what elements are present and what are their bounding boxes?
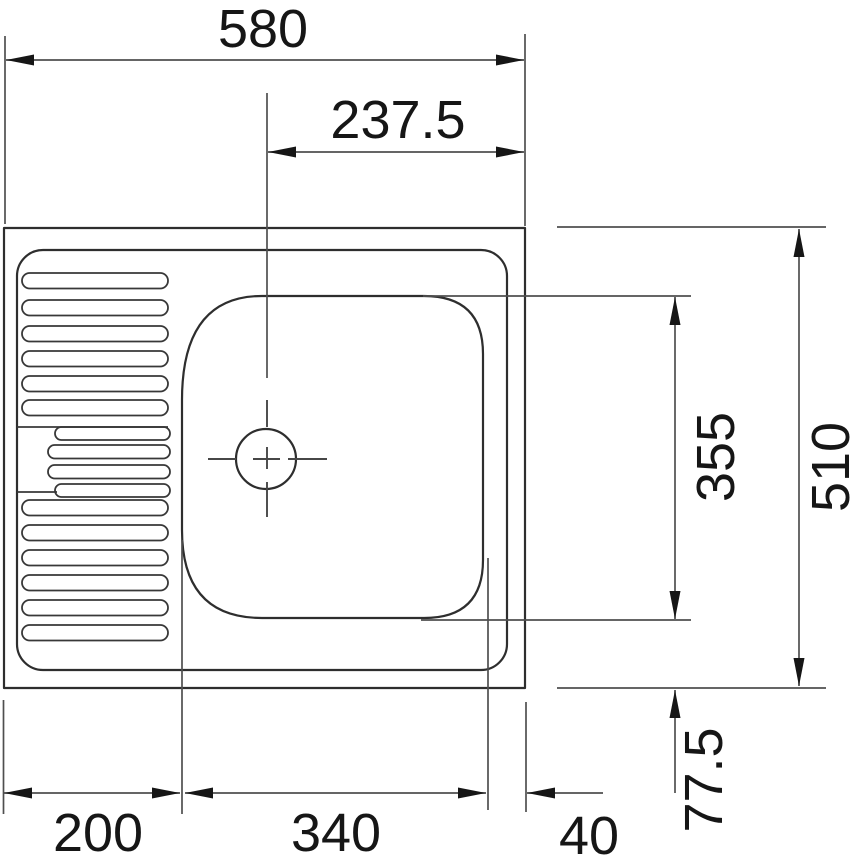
- sink-inner-basin-edge: [17, 250, 507, 670]
- drain-rib-short: [48, 465, 170, 479]
- drain-rib-short: [55, 427, 170, 440]
- dimension-label-77-5: 77.5: [674, 727, 734, 832]
- arrowhead: [496, 147, 524, 158]
- arrowhead: [4, 788, 32, 799]
- drain-rib: [22, 300, 168, 316]
- dimension-label-200: 200: [53, 803, 143, 860]
- dimension-bottom-chain: 200 340 40: [4, 540, 620, 860]
- sink-technical-drawing: 580 237.5 355 510 77.5: [0, 0, 860, 860]
- drain-rib: [22, 575, 168, 591]
- dimension-bowl-length: 355: [421, 296, 746, 620]
- arrowhead: [496, 55, 524, 66]
- drain-rib: [22, 326, 168, 342]
- dimension-label-510: 510: [801, 422, 860, 512]
- drain-rib: [22, 400, 168, 416]
- bowl-outline: [182, 296, 483, 618]
- dimension-label-40: 40: [559, 806, 619, 860]
- arrowhead: [268, 147, 296, 158]
- drain-rib: [22, 376, 168, 392]
- dimension-drain-offset: 237.5: [267, 90, 524, 378]
- drain-rib-short: [55, 484, 170, 497]
- drain-rib: [22, 500, 168, 516]
- dimension-label-340: 340: [291, 803, 381, 860]
- dimension-label-237-5: 237.5: [330, 90, 465, 150]
- dimension-label-580: 580: [218, 0, 308, 59]
- drain-rib: [22, 351, 168, 367]
- drain-rib: [22, 550, 168, 566]
- arrowhead: [794, 229, 805, 257]
- drain-rib: [22, 525, 168, 541]
- drain-rib-short: [48, 445, 170, 459]
- arrowhead: [527, 788, 555, 799]
- dimension-bowl-to-edge: 77.5: [670, 690, 735, 833]
- arrowhead: [794, 658, 805, 686]
- drain-crosshair: [208, 400, 327, 517]
- arrowhead: [185, 788, 213, 799]
- arrowhead: [6, 55, 34, 66]
- bowl: [182, 296, 483, 618]
- drain-rib: [22, 600, 168, 616]
- drain-rib: [22, 625, 168, 641]
- arrowhead: [670, 591, 681, 619]
- arrowhead: [458, 788, 486, 799]
- arrowhead: [152, 788, 180, 799]
- arrowhead: [670, 690, 681, 718]
- drain-rib: [22, 273, 168, 289]
- arrowhead: [670, 297, 681, 325]
- drawing-svg: 580 237.5 355 510 77.5: [0, 0, 860, 860]
- drainboard: [17, 273, 170, 641]
- dimension-label-355: 355: [686, 412, 746, 502]
